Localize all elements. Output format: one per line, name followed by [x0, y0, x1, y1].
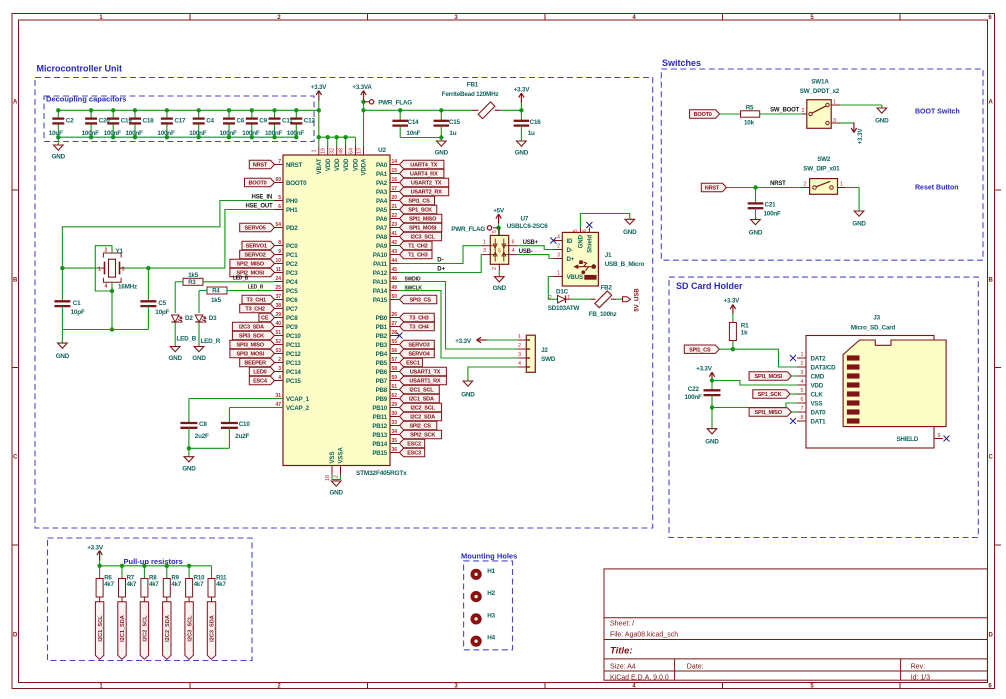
- svg-text:PC15: PC15: [286, 378, 301, 385]
- svg-text:40: 40: [275, 321, 281, 327]
- svg-text:6: 6: [801, 397, 804, 403]
- svg-text:2u2F: 2u2F: [235, 433, 249, 440]
- svg-text:10: 10: [275, 258, 281, 264]
- svg-text:2: 2: [802, 108, 805, 114]
- svg-text:PA9: PA9: [376, 243, 388, 250]
- svg-text:GND: GND: [493, 285, 507, 292]
- svg-text:5: 5: [498, 249, 501, 255]
- svg-text:PC5: PC5: [286, 288, 298, 295]
- svg-text:9: 9: [938, 433, 941, 439]
- svg-text:Date:: Date:: [687, 664, 704, 671]
- svg-text:USB-: USB-: [519, 249, 533, 255]
- svg-text:26: 26: [392, 312, 398, 318]
- svg-text:Shield: Shield: [588, 234, 594, 252]
- svg-text:GND: GND: [52, 154, 66, 161]
- svg-text:PC3: PC3: [286, 270, 298, 277]
- svg-text:Microcontroller Unit: Microcontroller Unit: [37, 64, 123, 74]
- svg-text:PC12: PC12: [286, 351, 301, 358]
- svg-text:Id: 1/3: Id: 1/3: [911, 674, 931, 681]
- svg-text:PB0: PB0: [376, 315, 388, 322]
- svg-text:PB6: PB6: [376, 369, 388, 376]
- svg-text:53: 53: [275, 348, 281, 354]
- svg-text:2: 2: [801, 361, 804, 367]
- svg-text:HSE_IN: HSE_IN: [252, 195, 272, 201]
- svg-text:GND: GND: [852, 221, 866, 228]
- svg-text:PA14: PA14: [373, 288, 388, 295]
- svg-text:+3.3V: +3.3V: [514, 87, 531, 94]
- svg-text:PC0: PC0: [286, 243, 298, 250]
- svg-text:3: 3: [122, 266, 125, 272]
- svg-text:NRST: NRST: [705, 186, 720, 192]
- svg-text:10pF: 10pF: [155, 309, 169, 316]
- svg-text:C10: C10: [239, 421, 251, 428]
- svg-text:54: 54: [275, 222, 281, 228]
- svg-text:PA10: PA10: [373, 252, 388, 259]
- svg-text:7: 7: [278, 159, 281, 165]
- svg-text:VDD: VDD: [354, 158, 360, 171]
- svg-text:8: 8: [278, 240, 281, 246]
- svg-text:U2: U2: [378, 147, 386, 154]
- svg-text:24: 24: [275, 276, 281, 282]
- svg-text:I2C3_SCL: I2C3_SCL: [187, 615, 193, 642]
- svg-text:PB12: PB12: [372, 423, 387, 430]
- svg-text:CE: CE: [261, 316, 269, 322]
- svg-text:58: 58: [392, 366, 398, 372]
- svg-text:5: 5: [492, 230, 498, 233]
- svg-text:4: 4: [105, 284, 108, 290]
- svg-text:SPI2_MISO: SPI2_MISO: [237, 262, 265, 268]
- svg-text:DAT3/CD: DAT3/CD: [811, 364, 837, 371]
- svg-text:VDD: VDD: [811, 382, 824, 389]
- svg-text:I2C2_SCL: I2C2_SCL: [411, 406, 436, 412]
- svg-text:C8: C8: [199, 421, 207, 428]
- svg-text:57: 57: [392, 357, 398, 363]
- svg-text:PB11: PB11: [373, 414, 388, 421]
- svg-text:C21: C21: [765, 202, 777, 209]
- svg-text:STM32F405RGTx: STM32F405RGTx: [356, 470, 407, 477]
- svg-text:10nF: 10nF: [406, 130, 420, 137]
- svg-text:SERVO3: SERVO3: [408, 343, 429, 349]
- svg-text:SPI3_MOSI: SPI3_MOSI: [237, 352, 265, 358]
- svg-text:44: 44: [392, 258, 398, 264]
- svg-text:PC7: PC7: [286, 306, 298, 313]
- svg-text:T3_CH3: T3_CH3: [409, 316, 428, 322]
- svg-text:1: 1: [312, 150, 318, 153]
- svg-text:61: 61: [392, 384, 398, 390]
- svg-text:GND: GND: [182, 465, 196, 472]
- svg-text:ESC3: ESC3: [407, 451, 421, 457]
- svg-text:SERVO1: SERVO1: [246, 244, 267, 250]
- svg-text:43: 43: [392, 249, 398, 255]
- svg-text:1: 1: [518, 334, 521, 340]
- svg-text:17: 17: [392, 186, 398, 192]
- svg-text:SPI2_CS: SPI2_CS: [409, 424, 431, 430]
- svg-text:PB2: PB2: [376, 333, 388, 340]
- svg-text:+3.3V: +3.3V: [455, 338, 472, 345]
- svg-text:PC14: PC14: [286, 369, 301, 376]
- svg-text:7: 7: [801, 406, 804, 412]
- svg-text:SPI1_MOSI: SPI1_MOSI: [409, 226, 437, 232]
- svg-text:GND: GND: [515, 150, 529, 157]
- svg-text:9: 9: [278, 249, 281, 255]
- svg-text:PWR_FLAG: PWR_FLAG: [451, 226, 485, 233]
- svg-text:SPI2_SCK: SPI2_SCK: [410, 433, 435, 439]
- svg-text:D-: D-: [437, 258, 443, 264]
- svg-text:D+: D+: [567, 256, 575, 263]
- svg-text:22: 22: [392, 213, 398, 219]
- svg-text:SPI3_MISO: SPI3_MISO: [237, 343, 265, 349]
- svg-text:DAT1: DAT1: [811, 418, 827, 425]
- svg-text:2: 2: [804, 182, 807, 188]
- svg-text:SD103ATW: SD103ATW: [548, 305, 580, 312]
- svg-text:37: 37: [275, 294, 281, 300]
- svg-text:46: 46: [392, 276, 398, 282]
- svg-text:ID: ID: [567, 238, 574, 245]
- svg-text:SPI1_MISO: SPI1_MISO: [755, 410, 783, 416]
- svg-text:Y1: Y1: [116, 248, 124, 255]
- svg-text:1: 1: [483, 239, 486, 245]
- svg-text:T3_CH4: T3_CH4: [409, 325, 429, 331]
- svg-text:51: 51: [275, 330, 281, 336]
- svg-text:1u: 1u: [449, 130, 456, 137]
- svg-text:PA8: PA8: [376, 234, 388, 241]
- svg-text:SP1_SCK: SP1_SCK: [758, 392, 782, 398]
- svg-text:USART1_RX: USART1_RX: [409, 379, 441, 385]
- svg-text:T1_CH3: T1_CH3: [408, 253, 427, 259]
- svg-text:BOOT Switch: BOOT Switch: [915, 109, 960, 116]
- svg-text:T3_CH1: T3_CH1: [247, 298, 266, 304]
- svg-text:UART4_RX: UART4_RX: [410, 172, 438, 178]
- svg-text:BEEPER: BEEPER: [244, 361, 266, 367]
- svg-text:D+: D+: [437, 267, 445, 273]
- svg-text:1: 1: [840, 182, 843, 188]
- svg-text:100nF: 100nF: [242, 130, 260, 137]
- svg-text:U7: U7: [521, 216, 529, 223]
- svg-text:NRST: NRST: [770, 181, 786, 187]
- svg-text:PB13: PB13: [372, 432, 387, 439]
- svg-text:4: 4: [801, 379, 804, 385]
- svg-text:DAT0: DAT0: [811, 409, 827, 416]
- svg-text:HSE_OUT: HSE_OUT: [246, 204, 273, 210]
- svg-text:100nF: 100nF: [287, 130, 305, 137]
- svg-text:ESC2: ESC2: [407, 442, 421, 448]
- svg-text:52: 52: [275, 339, 281, 345]
- svg-text:GND: GND: [705, 439, 719, 446]
- svg-text:GND: GND: [435, 150, 449, 157]
- svg-text:GND: GND: [623, 229, 637, 236]
- svg-text:I2C1_SDA: I2C1_SDA: [120, 615, 126, 642]
- svg-text:PC6: PC6: [286, 297, 298, 304]
- svg-text:SW2: SW2: [817, 156, 831, 163]
- svg-text:PA0: PA0: [376, 162, 388, 169]
- svg-text:19: 19: [321, 148, 327, 154]
- svg-text:BOOT0: BOOT0: [248, 181, 266, 187]
- svg-text:C1: C1: [73, 300, 81, 307]
- svg-text:KiCad E.D.A. 9.0.0: KiCad E.D.A. 9.0.0: [610, 674, 669, 681]
- svg-text:56: 56: [392, 348, 398, 354]
- svg-text:I2C1_SCL: I2C1_SCL: [409, 388, 434, 394]
- svg-text:35: 35: [392, 438, 398, 444]
- svg-text:VDDA: VDDA: [362, 158, 368, 176]
- svg-text:J3: J3: [873, 315, 880, 322]
- svg-text:SWCLK: SWCLK: [405, 285, 423, 291]
- svg-text:SERVO4: SERVO4: [408, 352, 430, 358]
- svg-text:LED_R: LED_R: [248, 284, 264, 290]
- svg-text:NRST: NRST: [286, 162, 302, 169]
- svg-text:FB1: FB1: [467, 82, 479, 89]
- svg-text:+3.3V: +3.3V: [858, 129, 864, 145]
- svg-text:8: 8: [801, 415, 804, 421]
- svg-text:C: C: [13, 454, 18, 460]
- svg-text:Micro_SD_Card: Micro_SD_Card: [851, 325, 896, 332]
- svg-text:R3: R3: [188, 280, 196, 286]
- svg-text:SW_DPDT_x2: SW_DPDT_x2: [800, 88, 840, 95]
- svg-text:VDD: VDD: [344, 158, 350, 171]
- svg-text:GND: GND: [168, 355, 182, 362]
- svg-text:ESC1: ESC1: [406, 361, 420, 367]
- svg-text:R1: R1: [741, 323, 749, 330]
- svg-text:PA1: PA1: [376, 171, 388, 178]
- svg-text:10k: 10k: [744, 119, 755, 126]
- svg-text:21: 21: [392, 204, 398, 210]
- svg-text:USBLC6-2SC6: USBLC6-2SC6: [507, 223, 549, 230]
- svg-text:100nF: 100nF: [126, 130, 144, 137]
- svg-text:14: 14: [392, 159, 398, 165]
- svg-text:SPI1_CS: SPI1_CS: [689, 347, 711, 353]
- svg-text:2: 2: [549, 295, 552, 301]
- svg-text:DAT2: DAT2: [811, 355, 827, 362]
- svg-text:2: 2: [278, 357, 281, 363]
- svg-text:5: 5: [278, 195, 281, 201]
- svg-text:C17: C17: [174, 118, 186, 125]
- svg-text:I2C2_SDA: I2C2_SDA: [165, 615, 171, 642]
- svg-text:PB4: PB4: [376, 351, 388, 358]
- svg-text:SWDIO: SWDIO: [405, 276, 421, 282]
- svg-text:3: 3: [483, 248, 486, 254]
- svg-text:38: 38: [275, 303, 281, 309]
- svg-text:T3_CH2: T3_CH2: [245, 307, 264, 313]
- svg-text:+3.3V: +3.3V: [696, 365, 713, 372]
- svg-text:1: 1: [557, 271, 560, 277]
- svg-text:Size: A4: Size: A4: [610, 664, 636, 671]
- svg-text:34: 34: [392, 429, 398, 435]
- svg-text:D: D: [989, 632, 994, 638]
- svg-text:H1: H1: [487, 568, 495, 575]
- svg-text:4: 4: [518, 361, 521, 367]
- svg-text:PB5: PB5: [376, 360, 388, 367]
- svg-text:C22: C22: [688, 386, 700, 393]
- svg-text:SW_DIP_x01: SW_DIP_x01: [803, 166, 840, 173]
- svg-text:3: 3: [518, 352, 521, 358]
- svg-text:100nF: 100nF: [220, 130, 238, 137]
- svg-text:LED_B: LED_B: [233, 275, 249, 281]
- svg-text:PA5: PA5: [376, 207, 388, 214]
- svg-text:USART2_TX: USART2_TX: [411, 181, 442, 187]
- svg-text:VSS: VSS: [811, 400, 823, 407]
- svg-text:PA13: PA13: [373, 279, 388, 286]
- svg-text:PB8: PB8: [376, 387, 388, 394]
- svg-text:PC13: PC13: [286, 360, 301, 367]
- svg-text:H2: H2: [487, 590, 495, 597]
- svg-text:R5: R5: [746, 105, 754, 112]
- svg-text:C18: C18: [143, 118, 155, 125]
- svg-text:SERVO2: SERVO2: [245, 253, 266, 259]
- svg-text:GND: GND: [749, 230, 763, 237]
- svg-text:I2C2_SDA: I2C2_SDA: [410, 415, 435, 421]
- svg-text:1: 1: [801, 352, 804, 358]
- svg-text:R4: R4: [212, 289, 220, 295]
- svg-text:32: 32: [330, 148, 336, 154]
- svg-text:B: B: [989, 277, 994, 283]
- svg-text:PC2: PC2: [286, 261, 298, 268]
- svg-text:13: 13: [356, 148, 362, 154]
- svg-text:VSS: VSS: [330, 451, 336, 463]
- svg-text:50: 50: [392, 294, 398, 300]
- svg-text:SD Card Holder: SD Card Holder: [676, 281, 743, 291]
- svg-text:PC10: PC10: [286, 333, 301, 340]
- svg-text:1k: 1k: [741, 330, 748, 337]
- svg-text:59: 59: [392, 375, 398, 381]
- svg-text:PB14: PB14: [372, 441, 387, 448]
- svg-text:Reset Button: Reset Button: [915, 185, 959, 192]
- svg-text:SWD: SWD: [541, 356, 556, 363]
- svg-text:UART4_TX: UART4_TX: [410, 163, 437, 169]
- svg-text:PC1: PC1: [286, 252, 298, 259]
- svg-text:100nF: 100nF: [104, 130, 122, 137]
- svg-text:USART2_RX: USART2_RX: [411, 190, 443, 196]
- svg-text:+3.3V: +3.3V: [724, 298, 741, 305]
- svg-text:GND: GND: [461, 392, 475, 399]
- svg-text:6: 6: [582, 229, 588, 232]
- svg-text:PA3: PA3: [376, 189, 388, 196]
- svg-text:5: 5: [573, 229, 579, 232]
- svg-text:100nF: 100nF: [189, 130, 207, 137]
- svg-text:PC11: PC11: [286, 342, 301, 349]
- svg-text:PA7: PA7: [376, 225, 388, 232]
- svg-text:C12: C12: [304, 118, 316, 125]
- svg-text:SW_BOOT: SW_BOOT: [770, 107, 799, 113]
- svg-text:20: 20: [392, 195, 398, 201]
- svg-text:3: 3: [801, 370, 804, 376]
- svg-text:2: 2: [518, 343, 521, 349]
- svg-text:C15: C15: [449, 119, 461, 126]
- svg-text:SHIELD: SHIELD: [897, 436, 919, 443]
- svg-text:SPI1_MOSI: SPI1_MOSI: [755, 374, 783, 380]
- svg-text:15: 15: [392, 168, 398, 174]
- svg-text:FB_100hz: FB_100hz: [589, 311, 617, 318]
- svg-text:Pull-up resistors: Pull-up resistors: [124, 557, 183, 566]
- svg-text:4k7: 4k7: [127, 581, 137, 588]
- svg-text:PD2: PD2: [286, 225, 298, 232]
- svg-text:USB_B_Micro: USB_B_Micro: [605, 261, 645, 268]
- svg-text:SW1A: SW1A: [811, 79, 829, 86]
- svg-text:PB15: PB15: [372, 450, 387, 457]
- svg-text:VDD: VDD: [326, 158, 332, 171]
- svg-text:D2: D2: [185, 315, 193, 322]
- svg-text:VSSA: VSSA: [339, 446, 345, 463]
- svg-text:LED_B: LED_B: [177, 336, 197, 343]
- svg-text:C: C: [989, 454, 994, 460]
- svg-text:A: A: [13, 99, 18, 105]
- svg-text:USART1_TX: USART1_TX: [410, 370, 441, 376]
- svg-text:41: 41: [392, 231, 398, 237]
- svg-text:D-: D-: [567, 247, 573, 254]
- svg-text:16MHz: 16MHz: [118, 283, 137, 290]
- svg-text:+3.3V: +3.3V: [311, 84, 328, 91]
- svg-text:CLK: CLK: [811, 391, 824, 398]
- svg-text:1k5: 1k5: [188, 272, 199, 279]
- svg-text:LED0: LED0: [253, 370, 266, 376]
- svg-text:I2C2_SCL: I2C2_SCL: [143, 615, 149, 642]
- svg-text:10uF: 10uF: [49, 130, 63, 137]
- svg-text:PB7: PB7: [376, 378, 388, 385]
- svg-text:55: 55: [392, 339, 398, 345]
- svg-text:4k7: 4k7: [171, 581, 181, 588]
- svg-text:2: 2: [557, 244, 560, 250]
- svg-text:62: 62: [392, 393, 398, 399]
- svg-text:File: Aga08.kicad_sch: File: Aga08.kicad_sch: [610, 631, 678, 638]
- svg-text:VBUS: VBUS: [567, 274, 583, 281]
- svg-text:SPI1_CS: SPI1_CS: [408, 199, 430, 205]
- svg-text:11: 11: [276, 267, 282, 273]
- svg-text:C2: C2: [66, 118, 74, 125]
- svg-text:PWR_FLAG: PWR_FLAG: [378, 99, 412, 106]
- svg-text:I2C3_SDA: I2C3_SDA: [210, 615, 216, 642]
- svg-text:J1: J1: [605, 252, 612, 259]
- svg-text:BOOT0: BOOT0: [286, 180, 307, 187]
- svg-text:GND: GND: [579, 234, 585, 248]
- svg-text:USB+: USB+: [523, 240, 539, 246]
- svg-text:1: 1: [98, 266, 101, 272]
- svg-text:I2C1_SCL: I2C1_SCL: [98, 615, 104, 642]
- svg-text:4k7: 4k7: [149, 581, 159, 588]
- svg-text:PC8: PC8: [286, 315, 298, 322]
- svg-text:1u: 1u: [528, 130, 535, 137]
- svg-text:VCAP_1: VCAP_1: [286, 396, 310, 403]
- svg-text:3: 3: [557, 253, 560, 259]
- svg-text:PA4: PA4: [376, 198, 388, 205]
- svg-text:Rev:: Rev:: [911, 664, 925, 671]
- svg-text:I2C3_SDA: I2C3_SDA: [239, 325, 264, 331]
- svg-text:H3: H3: [487, 612, 495, 619]
- svg-text:25: 25: [275, 285, 281, 291]
- svg-text:+3.3V: +3.3V: [87, 545, 104, 552]
- svg-text:33: 33: [392, 420, 398, 426]
- svg-text:C4: C4: [206, 118, 214, 125]
- svg-text:SPI3_SCK: SPI3_SCK: [239, 334, 264, 340]
- svg-text:VCAP_2: VCAP_2: [286, 405, 310, 412]
- svg-text:SPI1_MISO: SPI1_MISO: [409, 217, 437, 223]
- svg-text:GND: GND: [56, 353, 70, 360]
- svg-text:4k7: 4k7: [194, 581, 204, 588]
- svg-text:PB9: PB9: [376, 396, 388, 403]
- svg-text:GND: GND: [329, 490, 343, 497]
- svg-text:T1_CH2: T1_CH2: [408, 244, 427, 250]
- svg-text:6: 6: [512, 239, 515, 245]
- svg-text:5V_USB: 5V_USB: [635, 288, 641, 312]
- svg-text:2u2F: 2u2F: [195, 433, 209, 440]
- svg-text:29: 29: [392, 402, 398, 408]
- svg-text:SERVO5: SERVO5: [245, 226, 266, 232]
- svg-text:Mounting Holes: Mounting Holes: [461, 552, 517, 561]
- svg-text:1k5: 1k5: [211, 297, 222, 304]
- svg-text:6: 6: [278, 204, 281, 210]
- svg-text:NRST: NRST: [253, 163, 268, 169]
- svg-text:48: 48: [338, 148, 344, 154]
- svg-text:VDD: VDD: [335, 158, 341, 171]
- svg-text:18: 18: [325, 475, 331, 481]
- svg-text:C16: C16: [530, 119, 542, 126]
